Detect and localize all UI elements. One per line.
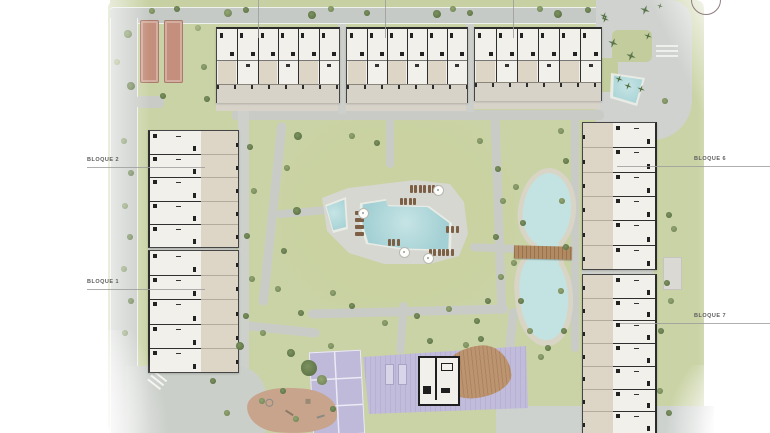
building-apron bbox=[346, 99, 466, 111]
building-apron bbox=[216, 99, 338, 111]
park-path-spur-top bbox=[386, 118, 394, 168]
petanque-court bbox=[164, 20, 183, 83]
gym-equipment bbox=[398, 364, 407, 385]
sidewalk-west-buildings bbox=[238, 106, 249, 378]
building-apron bbox=[474, 97, 600, 109]
building-seam bbox=[148, 245, 236, 250]
building-seam bbox=[582, 268, 654, 274]
gym-equipment bbox=[385, 364, 394, 385]
building-gap bbox=[338, 24, 346, 114]
site-plan: BLOQUE 2BLOQUE 1BLOQUE 6BLOQUE 7 bbox=[0, 0, 770, 433]
petanque-court bbox=[140, 20, 159, 83]
top-road bbox=[110, 7, 608, 24]
driveway-stub bbox=[136, 96, 164, 108]
park-path-top bbox=[232, 110, 604, 120]
building-gap bbox=[466, 24, 474, 112]
plaza-green-patch bbox=[612, 30, 652, 62]
terrace-plaza bbox=[663, 257, 682, 290]
edge-fade-right bbox=[698, 80, 770, 433]
plaza-steps bbox=[656, 45, 678, 59]
south-plaza bbox=[496, 406, 714, 433]
southwest-plaza bbox=[126, 366, 266, 433]
gym-building bbox=[418, 356, 460, 406]
lagoon-bridge bbox=[514, 245, 572, 260]
